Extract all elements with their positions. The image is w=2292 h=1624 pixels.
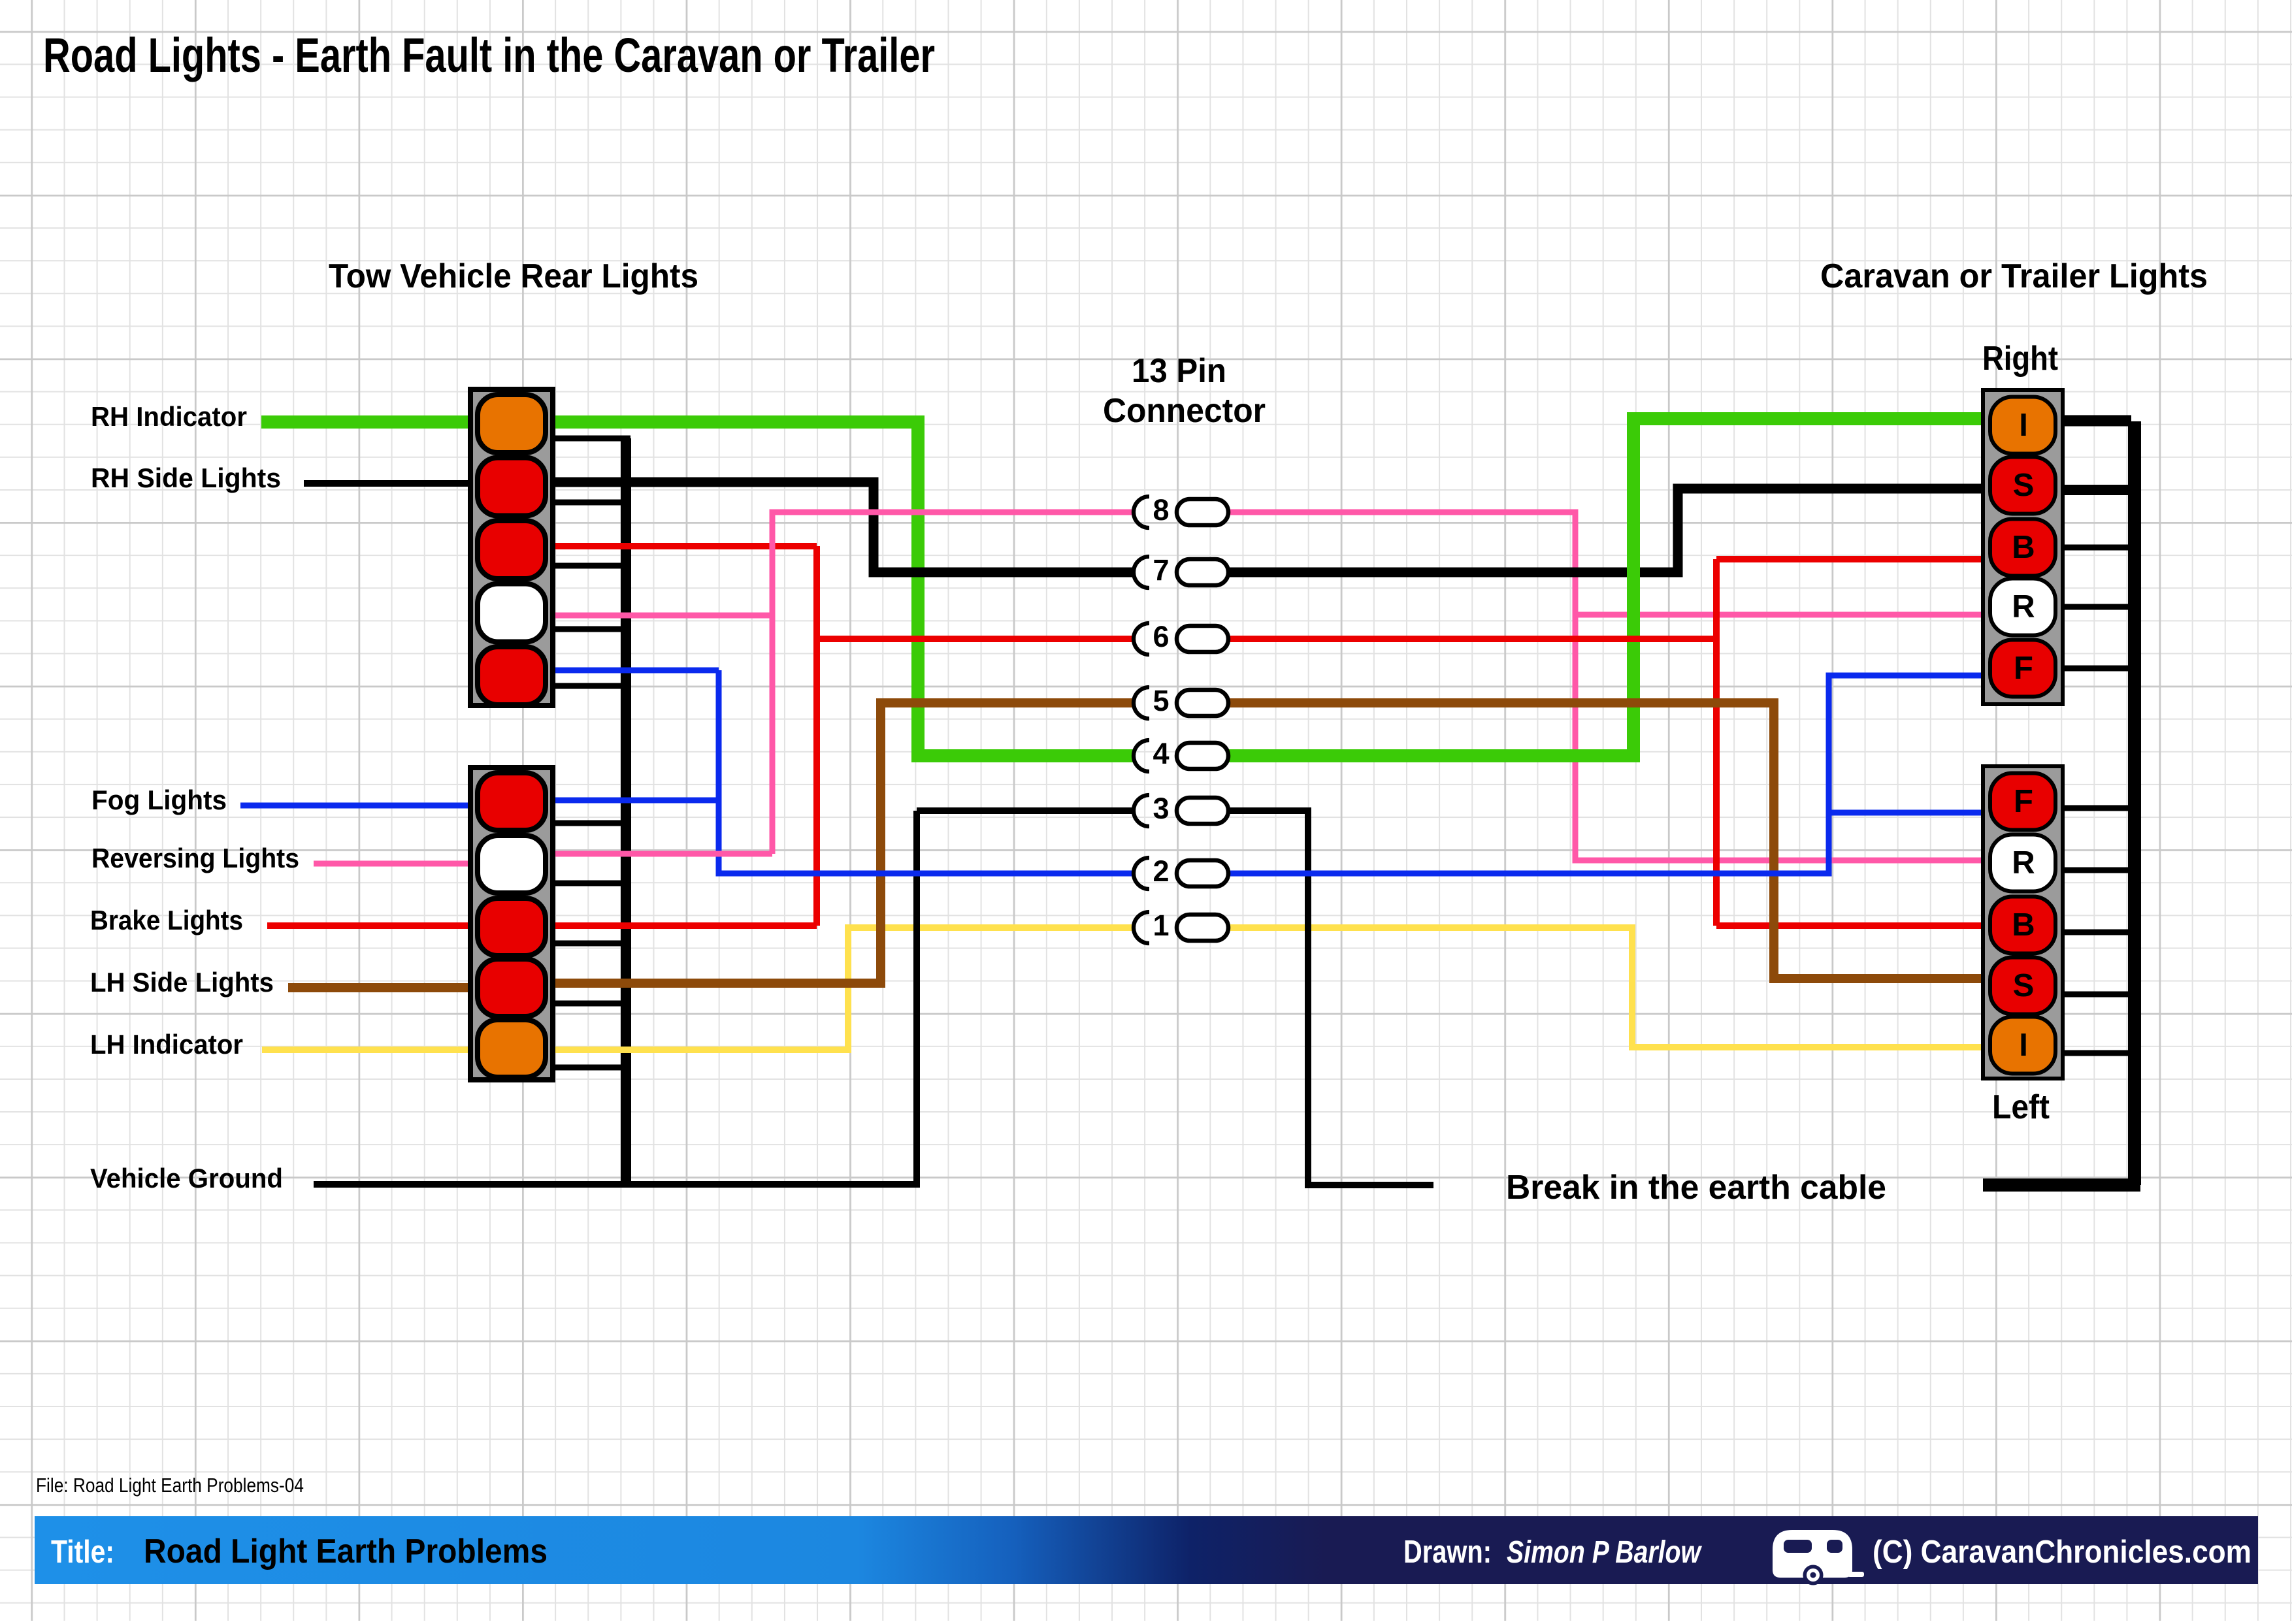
svg-text:4: 4	[1153, 737, 1169, 770]
svg-text:RH Indicator: RH Indicator	[91, 401, 247, 432]
svg-text:13 Pin: 13 Pin	[1132, 352, 1226, 390]
svg-text:Reversing Lights: Reversing Lights	[91, 843, 299, 873]
svg-text:R: R	[2012, 589, 2035, 625]
svg-text:Connector: Connector	[1103, 392, 1266, 430]
svg-text:Left: Left	[1992, 1088, 2050, 1126]
svg-text:File: Road Light Earth Problem: File: Road Light Earth Problems-04	[36, 1474, 304, 1497]
svg-text:Simon P Barlow: Simon P Barlow	[1507, 1535, 1702, 1570]
svg-text:6: 6	[1153, 620, 1169, 653]
svg-text:S: S	[2013, 468, 2035, 503]
svg-text:F: F	[2014, 651, 2033, 686]
svg-text:Fog Lights: Fog Lights	[91, 785, 227, 815]
svg-text:Brake Lights: Brake Lights	[90, 905, 243, 935]
svg-text:1: 1	[1153, 909, 1169, 942]
svg-text:Tow Vehicle Rear Lights: Tow Vehicle Rear Lights	[329, 257, 698, 295]
svg-text:R: R	[2012, 845, 2035, 881]
svg-text:Title:: Title:	[51, 1535, 114, 1570]
svg-text:I: I	[2019, 1028, 2028, 1063]
svg-text:Vehicle Ground: Vehicle Ground	[90, 1163, 283, 1194]
svg-text:5: 5	[1153, 684, 1169, 717]
svg-text:8: 8	[1153, 493, 1169, 527]
svg-text:LH Indicator: LH Indicator	[90, 1029, 243, 1060]
svg-text:Right: Right	[1982, 340, 2058, 378]
svg-text:B: B	[2012, 530, 2035, 565]
svg-text:Drawn:: Drawn:	[1403, 1535, 1492, 1570]
svg-text:Road Light Earth Problems: Road Light Earth Problems	[144, 1533, 548, 1570]
svg-text:S: S	[2013, 968, 2035, 1003]
svg-text:B: B	[2012, 907, 2035, 943]
svg-text:(C) CaravanChronicles.com: (C) CaravanChronicles.com	[1873, 1535, 2251, 1570]
svg-text:RH Side Lights: RH Side Lights	[91, 463, 281, 493]
svg-text:Road Lights - Earth Fault in t: Road Lights - Earth Fault in the Caravan…	[43, 28, 935, 82]
svg-text:3: 3	[1153, 792, 1169, 825]
svg-text:7: 7	[1153, 553, 1169, 587]
svg-text:I: I	[2019, 408, 2028, 443]
svg-text:F: F	[2014, 784, 2033, 819]
svg-text:Caravan or Trailer Lights: Caravan or Trailer Lights	[1820, 257, 2208, 295]
svg-text:LH Side Lights: LH Side Lights	[90, 967, 274, 998]
svg-text:2: 2	[1153, 854, 1169, 888]
svg-text:Break in the earth cable: Break in the earth cable	[1506, 1169, 1886, 1207]
